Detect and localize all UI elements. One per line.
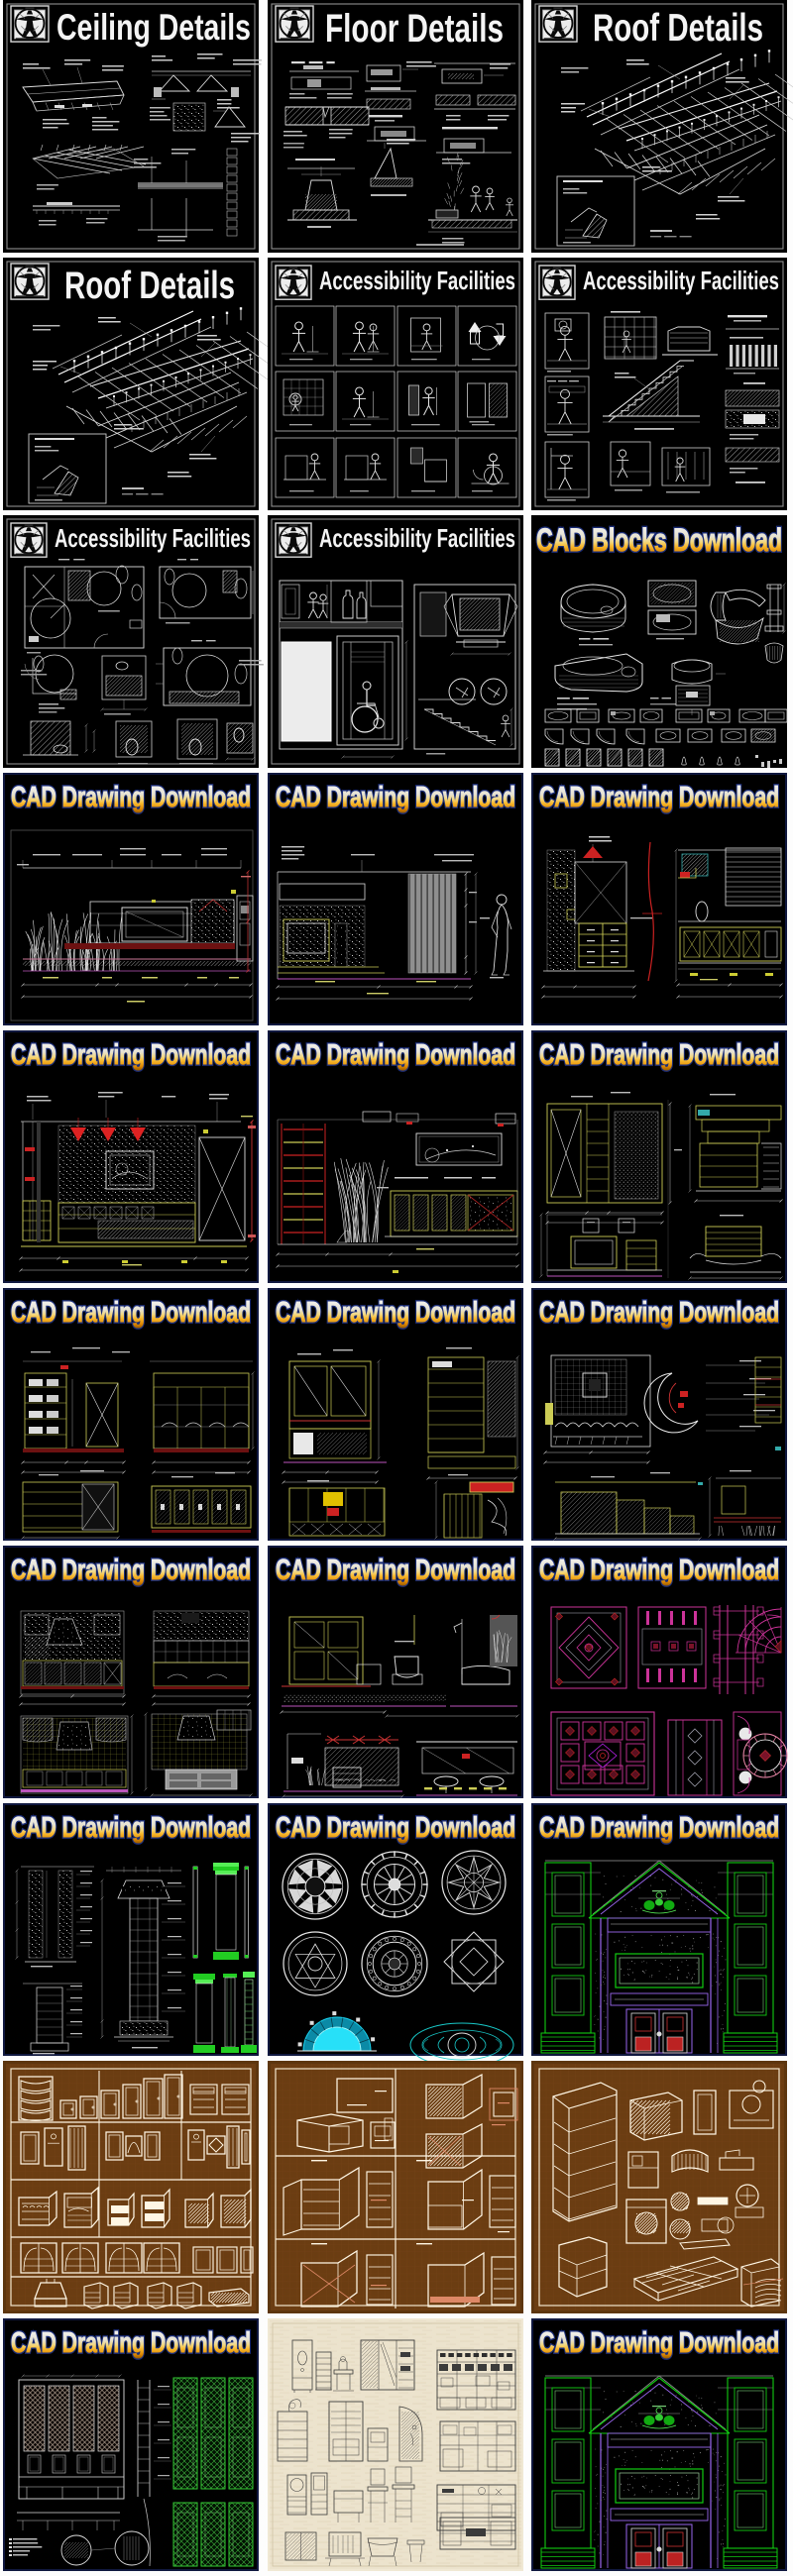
svg-text:CAD Drawing Download: CAD Drawing Download <box>11 2327 251 2359</box>
svg-text:CAD Drawing Download: CAD Drawing Download <box>11 1039 251 1071</box>
svg-text:Accessibility Facilities: Accessibility Facilities <box>583 266 779 295</box>
svg-text:CAD Blocks Download: CAD Blocks Download <box>536 522 782 558</box>
svg-text:CAD Drawing Download: CAD Drawing Download <box>11 1812 251 1844</box>
svg-text:CAD Drawing Download: CAD Drawing Download <box>276 1812 515 1844</box>
svg-text:CAD Drawing Download: CAD Drawing Download <box>539 1039 779 1071</box>
svg-text:CAD Drawing Download: CAD Drawing Download <box>11 782 251 813</box>
svg-text:CAD Drawing Download: CAD Drawing Download <box>539 1812 779 1844</box>
svg-text:Accessibility Facilities: Accessibility Facilities <box>319 266 515 295</box>
svg-text:Floor Details: Floor Details <box>325 7 504 51</box>
svg-text:CAD Drawing Download: CAD Drawing Download <box>276 1039 515 1071</box>
svg-text:CAD Drawing Download: CAD Drawing Download <box>276 1555 515 1586</box>
svg-text:CAD Drawing Download: CAD Drawing Download <box>539 1297 779 1329</box>
svg-text:CAD Drawing Download: CAD Drawing Download <box>11 1297 251 1329</box>
svg-text:Accessibility Facilities: Accessibility Facilities <box>319 523 515 553</box>
svg-text:CAD Drawing Download: CAD Drawing Download <box>539 782 779 813</box>
svg-text:CAD Drawing Download: CAD Drawing Download <box>11 1555 251 1586</box>
svg-text:Roof Details: Roof Details <box>593 7 763 50</box>
svg-text:CAD Drawing Download: CAD Drawing Download <box>276 782 515 813</box>
svg-text:CAD Drawing Download: CAD Drawing Download <box>539 1555 779 1586</box>
svg-text:CAD Drawing Download: CAD Drawing Download <box>276 1297 515 1329</box>
svg-text:Ceiling Details: Ceiling Details <box>57 7 251 48</box>
svg-text:Accessibility Facilities: Accessibility Facilities <box>55 523 251 553</box>
svg-text:Roof Details: Roof Details <box>64 265 235 307</box>
svg-text:CAD Drawing Download: CAD Drawing Download <box>539 2327 779 2359</box>
